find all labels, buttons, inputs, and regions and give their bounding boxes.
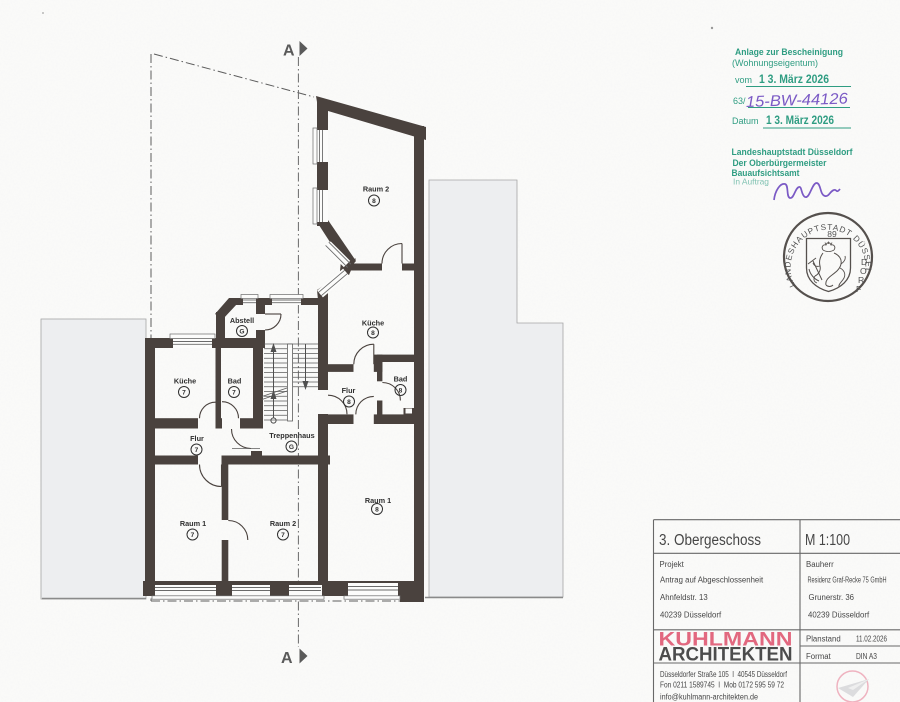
svg-text:Raum 2: Raum 2 [363, 185, 389, 194]
svg-text:Ahnfeldstr. 13: Ahnfeldstr. 13 [660, 593, 708, 602]
svg-text:1 3. März 2026: 1 3. März 2026 [766, 115, 834, 127]
svg-text:M 1:100: M 1:100 [805, 532, 850, 549]
svg-text:Küche: Küche [174, 377, 196, 386]
svg-text:Raum 1: Raum 1 [180, 519, 206, 528]
svg-text:3. Obergeschoss: 3. Obergeschoss [659, 532, 761, 549]
svg-text:Flur: Flur [190, 434, 204, 443]
svg-text:8: 8 [371, 330, 375, 337]
svg-text:A: A [283, 43, 295, 60]
svg-text:7: 7 [195, 447, 199, 454]
svg-text:Düsseldorfer Straße 105 I 40: Düsseldorfer Straße 105 I 40545 Düsseldo… [660, 670, 788, 679]
svg-text:8: 8 [399, 388, 403, 395]
svg-text:63/: 63/ [733, 96, 746, 106]
svg-text:1 3. März 2026: 1 3. März 2026 [759, 74, 829, 86]
svg-text:Projekt: Projekt [660, 560, 685, 569]
svg-text:40239 Düsseldorf: 40239 Düsseldorf [660, 611, 722, 620]
svg-text:vom: vom [735, 75, 752, 85]
svg-text:Format: Format [806, 652, 832, 661]
svg-text:7: 7 [281, 532, 285, 539]
svg-text:Bad: Bad [394, 375, 408, 384]
svg-text:Datum: Datum [732, 116, 759, 126]
svg-text:8: 8 [372, 198, 376, 205]
svg-text:Landeshauptstadt Düsseldorf: Landeshauptstadt Düsseldorf [732, 147, 853, 157]
svg-text:Residenz Graf-Recke 75 GmbH: Residenz Graf-Recke 75 GmbH [808, 576, 887, 585]
svg-text:40239 Düsseldorf: 40239 Düsseldorf [808, 611, 870, 620]
svg-text:info@kuhlmann-architekten.de: info@kuhlmann-architekten.de [660, 693, 758, 702]
svg-text:Bad: Bad [228, 377, 242, 386]
svg-text:Planstand: Planstand [806, 635, 841, 644]
svg-text:F: F [856, 284, 861, 294]
svg-text:15-BW-44126: 15-BW-44126 [746, 90, 849, 111]
svg-text:11.02.2026: 11.02.2026 [856, 635, 887, 644]
svg-text:Anlage zur Bescheinigung: Anlage zur Bescheinigung [735, 47, 843, 58]
svg-text:ARCHITEKTEN: ARCHITEKTEN [659, 645, 793, 666]
svg-text:7: 7 [191, 532, 195, 539]
svg-text:8: 8 [347, 399, 351, 406]
svg-text:Flur: Flur [342, 386, 356, 395]
svg-text:Abstell: Abstell [230, 316, 254, 325]
svg-text:Bauherr: Bauherr [806, 560, 834, 569]
svg-text:In Auftrag: In Auftrag [733, 177, 769, 187]
svg-text:Grunerstr. 36: Grunerstr. 36 [809, 593, 855, 602]
svg-text:7: 7 [232, 390, 236, 397]
svg-text:8: 8 [375, 507, 379, 514]
svg-text:(Wohnungseigentum): (Wohnungseigentum) [732, 58, 818, 69]
svg-text:Raum 2: Raum 2 [270, 519, 296, 528]
svg-text:Antrag auf Abgeschlossenheit: Antrag auf Abgeschlossenheit [660, 576, 764, 585]
svg-text:G: G [239, 329, 244, 336]
svg-text:A: A [281, 650, 293, 667]
svg-text:7: 7 [182, 390, 186, 397]
svg-text:Treppenhaus: Treppenhaus [269, 431, 314, 440]
svg-text:Der Oberbürgermeister: Der Oberbürgermeister [733, 158, 828, 168]
svg-text:G: G [289, 444, 294, 451]
svg-text:Küche: Küche [362, 319, 384, 328]
svg-text:Fon 0211 1589745 I Mob 0172: Fon 0211 1589745 I Mob 0172 595 59 72 [660, 681, 784, 690]
svg-text:DIN A3: DIN A3 [856, 652, 877, 661]
